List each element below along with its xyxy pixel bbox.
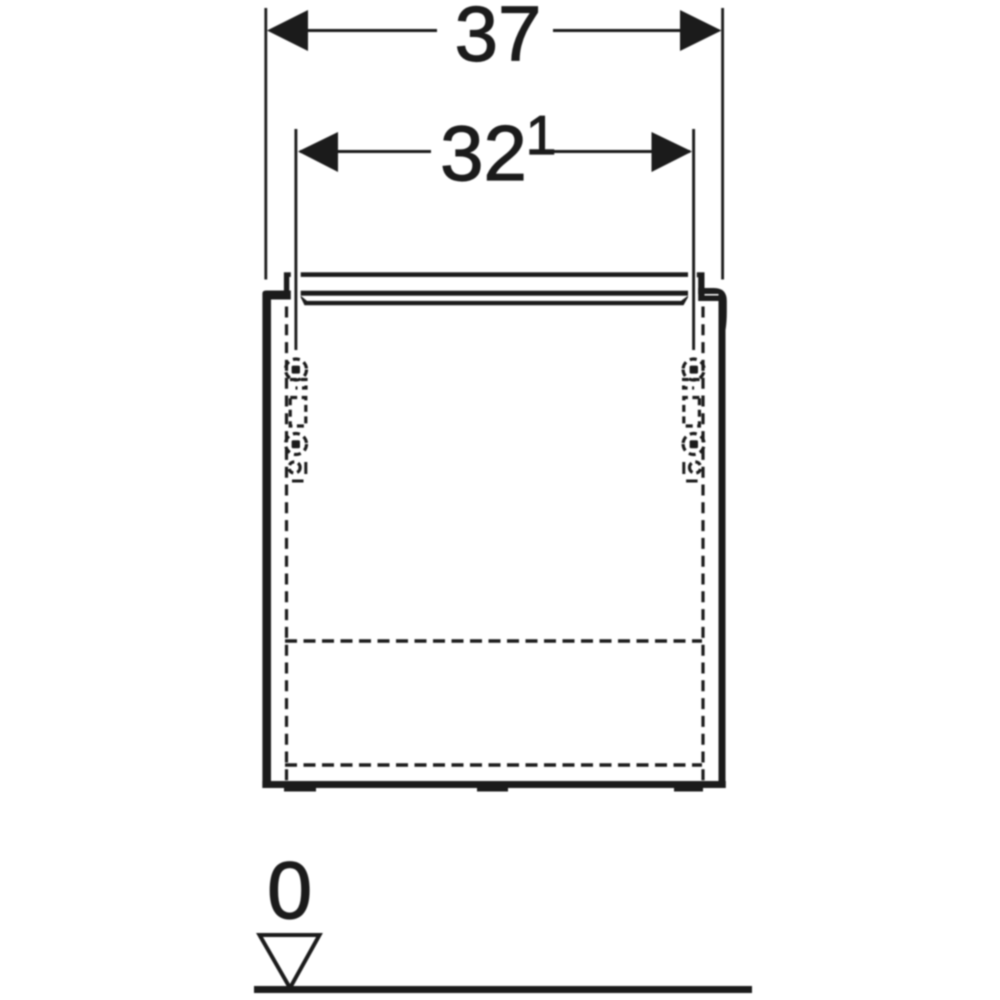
svg-text:32: 32	[440, 109, 527, 197]
svg-text:1: 1	[526, 104, 557, 166]
svg-text:0: 0	[267, 846, 312, 936]
svg-text:37: 37	[455, 0, 542, 78]
